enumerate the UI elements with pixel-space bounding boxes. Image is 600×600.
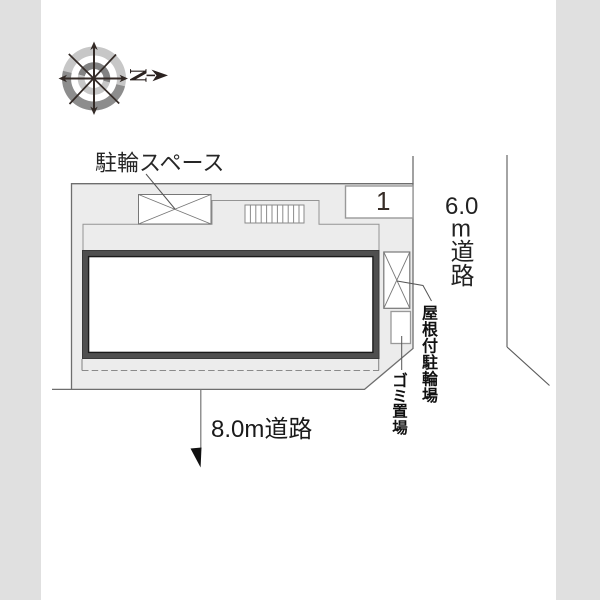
svg-text:駐: 駐	[422, 353, 438, 372]
svg-text:置: 置	[392, 403, 408, 421]
svg-text:8.0m道路: 8.0m道路	[211, 416, 312, 443]
svg-text:輪: 輪	[422, 370, 439, 389]
svg-text:路: 路	[451, 263, 475, 290]
svg-text:場: 場	[392, 419, 408, 437]
svg-text:ゴ: ゴ	[392, 371, 408, 390]
svg-text:場: 場	[422, 387, 438, 405]
svg-text:付: 付	[422, 337, 438, 356]
svg-text:駐輪スペース: 駐輪スペース	[95, 151, 224, 176]
svg-text:根: 根	[422, 320, 438, 339]
svg-text:1: 1	[376, 186, 390, 216]
svg-text:道: 道	[451, 239, 475, 266]
svg-text:屋: 屋	[422, 305, 438, 323]
